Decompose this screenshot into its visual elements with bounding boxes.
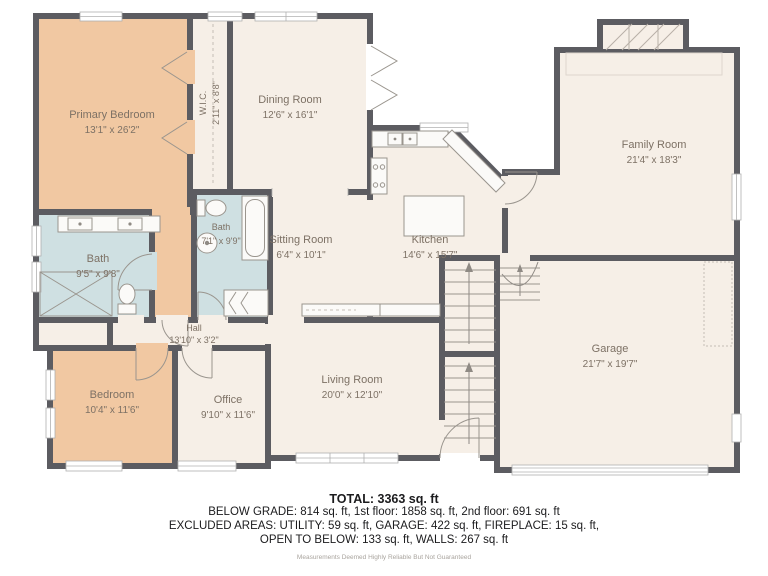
- room-label: Bath: [87, 253, 110, 265]
- room-label: Sitting Room: [270, 234, 333, 246]
- room-label: Kitchen: [412, 234, 449, 246]
- room-dims: 9'5" x 9'8": [76, 269, 120, 280]
- room-dims: 21'7" x 19'7": [583, 359, 638, 370]
- room-label: W.I.C.: [198, 91, 208, 116]
- summary-line: OPEN TO BELOW: 133 sq. ft, WALLS: 267 sq…: [0, 534, 768, 548]
- bathtub: [242, 196, 268, 260]
- room-family: [505, 50, 737, 258]
- summary-line: BELOW GRADE: 814 sq. ft, 1st floor: 1858…: [0, 506, 768, 520]
- room-dims: 13'10" x 3'2": [169, 335, 218, 345]
- room-label: Hall: [186, 323, 202, 333]
- toilet: [118, 284, 136, 314]
- room-label: Family Room: [622, 139, 687, 151]
- room-wic: [190, 16, 230, 192]
- room-dims: 10'4" x 11'6": [85, 405, 140, 416]
- stairwell: [442, 258, 498, 458]
- room-label: Dining Room: [258, 94, 322, 106]
- room-label: Bath: [212, 222, 231, 232]
- room-dims: 20'0" x 12'10": [322, 390, 383, 401]
- garage-door: [512, 465, 708, 475]
- room-living: [268, 320, 442, 458]
- total-area: TOTAL: 3363 sq. ft: [0, 492, 768, 506]
- room-dims: 9'10" x 11'6": [201, 410, 256, 421]
- closet: [36, 320, 110, 348]
- area-summary: TOTAL: 3363 sq. ft BELOW GRADE: 814 sq. …: [0, 492, 768, 561]
- counter: [302, 304, 440, 316]
- room-label: Living Room: [321, 374, 382, 386]
- toilet: [197, 200, 226, 216]
- room-dims: 7'1" x 9'9": [201, 236, 240, 246]
- room-dims: 13'1" x 26'2": [85, 125, 140, 136]
- floorplan-canvas: Primary Bedroom 13'1" x 26'2" W.I.C. 2'1…: [0, 0, 768, 490]
- room-label: Office: [214, 394, 243, 406]
- room-dims: 2'11" x 8'8": [211, 81, 221, 125]
- room-label: Garage: [592, 343, 629, 355]
- room-dims: 6'4" x 10'1": [276, 250, 326, 261]
- room-office: [175, 348, 268, 466]
- floorplan-page: Primary Bedroom 13'1" x 26'2" W.I.C. 2'1…: [0, 0, 768, 576]
- disclaimer: Measurements Deemed Highly Reliable But …: [0, 554, 768, 561]
- room-dims: 14'6" x 15'7": [403, 250, 458, 261]
- fireplace: [600, 22, 686, 52]
- hearth: [566, 53, 722, 75]
- room-label: Bedroom: [90, 389, 135, 401]
- room-dims: 12'6" x 16'1": [263, 110, 318, 121]
- kitchen-island: [404, 196, 464, 236]
- linen-closet: [224, 290, 268, 316]
- room-label: Primary Bedroom: [69, 109, 155, 121]
- stove: [371, 158, 387, 194]
- room-dims: 21'4" x 18'3": [627, 155, 682, 166]
- summary-line: EXCLUDED AREAS: UTILITY: 59 sq. ft, GARA…: [0, 520, 768, 534]
